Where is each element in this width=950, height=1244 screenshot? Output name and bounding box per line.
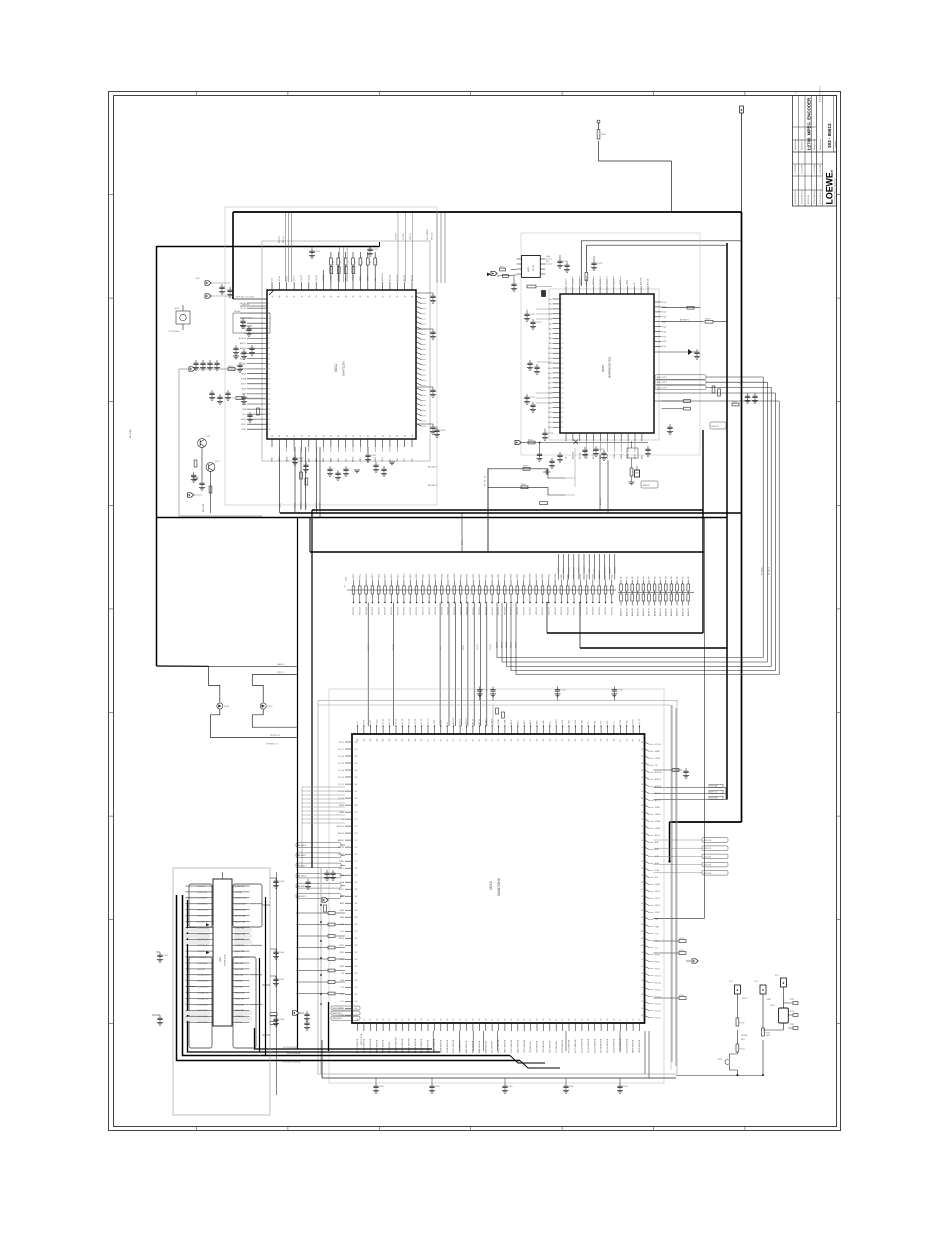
svg-text:SCL: SCL [546,261,550,263]
svg-text:40: 40 [272,296,274,298]
svg-text:67: 67 [594,1019,596,1021]
svg-text:R641: R641 [549,573,551,579]
svg-text:C703: C703 [617,690,623,692]
svg-text:ASCLK: ASCLK [389,274,392,281]
svg-text:AB A8 R: AB A8 R [665,608,668,616]
svg-text:AIN1 RA: AIN1 RA [235,956,243,959]
svg-text:R614: R614 [378,573,380,579]
svg-text:RTS1: RTS1 [370,720,372,725]
svg-text:VD D7 R: VD D7 R [523,607,525,615]
svg-text:VCLK ACLK 656 RA: VCLK ACLK 656 RA [283,1061,301,1064]
svg-text:73: 73 [633,1019,635,1021]
svg-text:107: 107 [402,739,404,742]
svg-text:VD_D2 MEM RA: VD_D2 MEM RA [613,1038,616,1053]
svg-text:20: 20 [269,399,271,401]
svg-text:CE MEM RA: CE MEM RA [388,1042,391,1053]
svg-text:4 03.02.99 Muel: 4 03.02.99 Muel [820,190,822,204]
svg-text:AB DAT 3: AB DAT 3 [298,875,306,878]
svg-text:ASCLK: ASCLK [578,452,581,459]
svg-text:VD_D1 MEM RA: VD_D1 MEM RA [619,1038,622,1053]
svg-text:115: 115 [453,739,455,742]
svg-text:AIN3: AIN3 [529,721,532,725]
svg-text:VDD1: VDD1 [241,424,246,426]
svg-text:VD D0 R: VD D0 R [416,607,418,615]
svg-text:R618: R618 [404,573,406,579]
svg-text:35: 35 [389,1019,391,1021]
svg-text:29: 29 [331,435,333,437]
svg-text:C620: C620 [371,455,377,457]
svg-text:CON RTS1: CON RTS1 [197,898,208,900]
svg-text:R: R [369,262,371,264]
svg-text:C676: C676 [597,263,603,265]
svg-text:40: 40 [421,1019,423,1021]
svg-text:11: 11 [269,353,271,355]
svg-text:RTS0: RTS0 [279,276,281,281]
svg-text:VD_D2: VD_D2 [574,567,576,573]
svg-text:94: 94 [641,980,643,982]
svg-text:AD_D1: AD_D1 [411,275,414,281]
svg-text:R629: R629 [473,573,475,579]
svg-text:4: 4 [269,318,270,320]
svg-text:64: 64 [575,1019,577,1021]
svg-text:190: 190 [355,952,358,954]
svg-text:114: 114 [447,739,449,742]
svg-text:VD_D2: VD_D2 [240,308,246,310]
svg-text:173: 173 [355,833,358,835]
svg-text:35: 35 [309,296,311,298]
svg-text:LLC: LLC [272,277,274,281]
svg-text:AIN1: AIN1 [242,388,246,391]
svg-text:134: 134 [575,739,577,742]
svg-text:191: 191 [355,959,358,961]
svg-text:63: 63 [641,763,643,765]
svg-text:VREF: VREF [627,279,629,285]
svg-text:8: 8 [344,586,346,588]
svg-text:AMCLK: AMCLK [396,274,399,281]
svg-text:VD D8 R: VD D8 R [593,607,595,615]
svg-text:112: 112 [434,739,436,742]
svg-text:54: 54 [511,1019,513,1021]
svg-text:182: 182 [355,896,358,898]
svg-text:34: 34 [316,296,318,298]
svg-text:VD D9 R: VD D9 R [536,607,538,615]
svg-text:C405: C405 [279,979,285,981]
svg-text:AB DAT 2: AB DAT 2 [298,864,306,867]
svg-text:SDA: SDA [546,255,550,258]
svg-text:VD_D7: VD_D7 [383,719,385,725]
svg-text:VD_D5: VD_D5 [338,763,344,765]
svg-text:75: 75 [641,847,643,849]
svg-text:ALRCLK MEM RA: ALRCLK MEM RA [395,1037,398,1053]
svg-text:A12: A12 [548,357,551,360]
svg-text:DIG G 2: DIG G 2 [283,236,285,243]
svg-text:DELAY: DELAY [234,310,241,313]
svg-text:61: 61 [641,749,643,751]
svg-text:VD D5 R: VD D5 R [574,607,576,615]
svg-text:AUD OUT 2: AUD OUT 2 [657,381,667,384]
svg-text:AB A0 R: AB A0 R [620,608,623,616]
svg-text:AB A6 R: AB A6 R [653,608,656,616]
svg-text:164: 164 [355,770,358,772]
svg-text:130: 130 [549,739,551,742]
svg-text:AIN4: AIN4 [340,916,344,919]
svg-text:14: 14 [269,368,271,370]
svg-text:AMCLK RA: AMCLK RA [235,909,246,912]
svg-text:121: 121 [492,739,494,742]
svg-text:LLC 27MHZ: LLC 27MHZ [427,228,429,240]
svg-text:VD_D7 MEM RA: VD_D7 MEM RA [581,1038,584,1053]
svg-text:113: 113 [440,739,442,742]
svg-text:AGND: AGND [315,502,318,508]
svg-text:47: 47 [466,1019,468,1021]
svg-text:HREF: HREF [434,719,436,725]
svg-text:137: 137 [594,739,596,742]
svg-text:VD_D7: VD_D7 [338,749,344,751]
svg-text:103: 103 [376,739,378,742]
svg-text:SCL: SCL [341,931,345,933]
svg-text:196: 196 [355,994,358,996]
svg-text:VDD2: VDD2 [655,905,660,907]
svg-text:55: 55 [517,1019,519,1021]
svg-text:RTCO: RTCO [376,719,378,725]
svg-text:116: 116 [460,739,462,742]
svg-text:R633: R633 [498,573,500,579]
svg-text:M29F800AB-70N1: M29F800AB-70N1 [608,356,612,378]
svg-text:VD D1 R: VD D1 R [423,607,425,615]
svg-text:D619: D619 [268,706,274,708]
svg-text:A17: A17 [548,382,551,385]
svg-text:33: 33 [360,435,362,437]
svg-text:AIN1: AIN1 [655,841,659,844]
svg-text:14: 14 [562,363,564,365]
svg-text:VSS1: VSS1 [655,898,660,900]
svg-text:C406: C406 [279,1019,285,1021]
svg-text:C611: C611 [315,251,321,253]
svg-text:VD_D5: VD_D5 [558,567,560,573]
svg-text:VD D1 R: VD D1 R [396,232,398,240]
svg-text:161: 161 [355,749,358,751]
svg-text:A1: A1 [549,303,551,306]
svg-text:AB A0 R: AB A0 R [676,608,679,616]
svg-text:SDA: SDA [242,408,246,411]
svg-text:R616: R616 [391,573,393,579]
svg-text:139: 139 [607,739,609,742]
svg-text:AIN1: AIN1 [307,458,310,462]
svg-text:VD_D6: VD_D6 [308,275,310,281]
svg-text:DQ2: DQ2 [663,312,667,314]
svg-text:VD_D0: VD_D0 [655,744,661,746]
svg-text:58: 58 [537,1019,539,1021]
svg-text:AUD CK2: AUD CK2 [704,855,712,858]
svg-text:86: 86 [641,924,643,926]
svg-text:VD_D6 MEM RA: VD_D6 MEM RA [587,1038,590,1053]
svg-text:AUD OUT 7: AUD OUT 7 [657,386,667,389]
svg-text:R: R [377,262,379,264]
svg-text:VD_D3: VD_D3 [338,777,344,779]
svg-text:VD D2 R: VD D2 R [492,607,494,615]
svg-text:VD D2 R: VD D2 R [555,607,557,615]
svg-text:IIC SCL 3: IIC SCL 3 [769,567,771,575]
svg-text:CON VD_D1: CON VD_D1 [197,945,209,947]
svg-text:R688: R688 [732,401,738,403]
svg-text:RESQ: RESQ [556,719,558,725]
svg-text:RESQ: RESQ [353,456,355,462]
svg-text:AV1: AV1 [196,277,201,280]
svg-text:I4070: I4070 [601,365,605,372]
svg-text:98: 98 [641,1008,643,1010]
svg-text:52: 52 [498,1019,500,1021]
svg-text:10: 10 [269,348,271,350]
svg-text:82: 82 [641,896,643,898]
svg-text:A15: A15 [548,372,551,375]
svg-text:CON VREF: CON VREF [197,963,208,965]
svg-text:25: 25 [269,424,271,426]
svg-text:106: 106 [396,739,398,742]
svg-text:XTALI: XTALI [655,806,660,809]
svg-text:Freigabe: Freigabe [835,141,837,148]
svg-text:SC VCLK 656 RA: SC VCLK 656 RA [283,1046,299,1049]
svg-text:A10: A10 [548,347,551,350]
svg-text:I4075: I4075 [528,266,530,272]
svg-text:SDA MEM RA: SDA MEM RA [484,1040,487,1053]
svg-text:TMS: TMS [594,720,596,725]
svg-text:C612: C612 [373,249,379,251]
svg-text:VREF MEM RA: VREF MEM RA [382,1039,385,1053]
svg-text:TDI: TDI [341,973,344,975]
svg-text:AGND: AGND [294,502,297,508]
svg-text:R0: R0 [621,576,623,579]
svg-text:VD_D5: VD_D5 [655,989,661,991]
svg-text:84: 84 [641,910,643,912]
svg-text:VDD1: VDD1 [562,720,564,725]
svg-text:R: R [347,262,349,264]
svg-text:123: 123 [505,739,507,742]
svg-text:R630: R630 [479,573,481,579]
svg-text:393 - 89612: 393 - 89612 [827,123,832,148]
svg-text:91: 91 [641,959,643,961]
svg-text:104: 104 [383,739,385,742]
svg-text:R619: R619 [410,573,412,579]
svg-text:CON VD_D6: CON VD_D6 [197,916,209,918]
svg-text:DQ7: DQ7 [663,336,667,338]
svg-text:DQ9: DQ9 [663,346,667,348]
svg-text:R675: R675 [500,266,506,268]
svg-text:ASCLK: ASCLK [608,566,611,573]
svg-text:R610: R610 [601,134,607,136]
svg-text:100n: 100n [508,1086,514,1088]
svg-text:ASCLK: ASCLK [647,278,650,285]
svg-text:131: 131 [556,739,558,742]
svg-text:TDI MEM RA: TDI MEM RA [529,1041,532,1053]
svg-text:90: 90 [641,952,643,954]
svg-text:Name Datum: Name Datum [801,138,804,150]
svg-text:SCL: SCL [549,721,551,725]
svg-text:DQ8: DQ8 [663,341,667,343]
svg-text:VD D8 R: VD D8 R [530,607,532,615]
svg-text:VREF RA: VREF RA [235,885,244,888]
svg-text:VDD1 MEM RA: VDD1 MEM RA [504,1039,507,1053]
svg-text:VD_D3: VD_D3 [408,719,410,725]
svg-text:VD_D6: VD_D6 [655,982,661,984]
svg-text:AV CVBS: AV CVBS [129,429,132,438]
svg-text:187: 187 [355,931,358,933]
svg-text:TDI RA: TDI RA [235,1021,242,1024]
svg-text:ASCLK RA: ASCLK RA [235,903,246,906]
svg-text:XTALO RA: XTALO RA [235,932,245,935]
svg-text:35: 35 [375,435,377,437]
svg-text:XTALI: XTALI [271,456,274,462]
svg-text:C618: C618 [298,458,304,460]
svg-text:AD_D1: AD_D1 [478,719,481,725]
svg-text:a 21.10.98: a 21.10.98 [814,165,816,174]
svg-text:RTCO: RTCO [655,968,661,970]
svg-text:36: 36 [396,1019,398,1021]
svg-text:VD_D4: VD_D4 [563,567,565,573]
svg-text:37: 37 [294,296,296,298]
svg-text:UB SW 3.3: UB SW 3.3 [270,735,281,737]
svg-text:195: 195 [355,987,358,989]
svg-text:VD D3 R: VD D3 R [372,607,374,615]
svg-text:VREF: VREF [241,328,247,330]
svg-text:186: 186 [355,924,358,926]
svg-text:VD D0 R: VD D0 R [403,232,405,240]
svg-text:RTS0: RTS0 [463,645,465,650]
svg-text:21: 21 [562,397,564,399]
svg-text:AU DAC L: AU DAC L [428,466,438,469]
svg-text:R625: R625 [448,573,450,579]
svg-text:100n: 100n [379,1086,385,1088]
svg-text:MEM DAT 2: MEM DAT 2 [333,1017,343,1020]
svg-text:VSS2: VSS2 [655,912,660,914]
svg-text:TDO: TDO [340,994,344,996]
svg-text:9: 9 [269,343,270,345]
svg-text:R638: R638 [530,573,532,579]
svg-text:160: 160 [355,742,358,744]
svg-text:VDD2: VDD2 [375,457,377,462]
svg-text:AOUT MEM RA: AOUT MEM RA [452,1039,455,1053]
svg-text:21: 21 [412,296,414,298]
svg-text:ADC REF: ADC REF [202,503,205,512]
svg-text:VD D3 R: VD D3 R [435,607,437,615]
svg-text:AB DAT 1: AB DAT 1 [298,854,306,857]
svg-text:A PWR 5V: A PWR 5V [680,319,690,322]
svg-text:BUF SEL CYC MUX: BUF SEL CYC MUX [236,297,255,299]
svg-text:17: 17 [562,378,564,380]
svg-text:C675: C675 [563,261,569,263]
svg-text:VD_D5: VD_D5 [490,644,492,650]
svg-text:SAA7113H: SAA7113H [342,361,346,376]
svg-text:ALRCLK: ALRCLK [239,337,247,340]
svg-text:VSS1 RA: VSS1 RA [235,1003,244,1006]
svg-text:26: 26 [375,296,377,298]
svg-text:SCH MPEG ENC 21.10.98 4/99: SCH MPEG ENC 21.10.98 4/99 [835,179,837,204]
svg-text:TMS MEM RA: TMS MEM RA [536,1040,539,1053]
svg-text:46: 46 [460,1019,462,1021]
svg-text:VSS2: VSS2 [382,457,384,462]
svg-text:117: 117 [466,739,468,742]
svg-text:VD_D7: VD_D7 [566,279,568,285]
svg-text:71: 71 [620,1019,622,1021]
svg-text:110: 110 [421,739,423,742]
svg-text:R631: R631 [486,573,488,579]
svg-text:VD D1 R: VD D1 R [612,607,614,615]
svg-text:C701: C701 [483,690,489,692]
svg-text:DQ5: DQ5 [663,326,667,328]
svg-text:STBY: STBY [767,999,772,1001]
svg-text:73: 73 [641,833,643,835]
svg-text:136: 136 [588,739,590,742]
svg-text:Q613: Q613 [174,308,180,310]
svg-text:29: 29 [353,296,355,298]
svg-text:C403: C403 [279,881,285,883]
svg-text:AUD OUT 7: AUD OUT 7 [657,376,667,379]
svg-text:VSSA: VSSA [655,827,661,830]
svg-text:VD D7 R: VD D7 R [397,607,399,615]
svg-text:R642: R642 [555,573,557,579]
svg-text:178: 178 [355,868,358,870]
svg-text:VD_D1: VD_D1 [579,567,581,573]
svg-text:VD_D5: VD_D5 [396,719,398,725]
svg-text:66: 66 [641,784,643,786]
svg-text:RTCO MEM RA: RTCO MEM RA [574,1039,577,1053]
svg-text:HREF: HREF [241,323,247,325]
svg-text:13: 13 [562,358,564,360]
svg-text:R634: R634 [504,573,506,579]
svg-text:VD D9 R: VD D9 R [473,607,475,615]
svg-text:ALRCLK RA: ALRCLK RA [235,897,247,900]
svg-text:CON HREF: CON HREF [197,957,208,959]
svg-text:VD_D6: VD_D6 [368,644,370,650]
svg-text:23: 23 [562,407,564,409]
svg-text:C678: C678 [548,433,554,435]
svg-text:R627: R627 [460,573,462,579]
svg-text:AB A4 R: AB A4 R [642,608,645,616]
svg-text:TCK: TCK [404,457,406,462]
svg-text:RTS1: RTS1 [626,720,628,725]
svg-text:10: 10 [562,343,564,345]
svg-text:Q751: Q751 [770,1005,775,1007]
svg-text:VD CLK: VD CLK [432,232,434,240]
svg-text:VD D7 R: VD D7 R [460,607,462,615]
svg-text:CON ALRCLK: CON ALRCLK [197,974,210,977]
svg-text:SCL: SCL [655,877,659,879]
svg-text:AD_D1 RA: AD_D1 RA [235,920,245,923]
svg-text:77: 77 [641,861,643,863]
svg-text:16: 16 [269,379,271,381]
svg-text:Name Datum: Name Datum [813,138,816,150]
svg-text:AB A9 R: AB A9 R [670,608,673,616]
svg-text:3: 3 [562,309,563,311]
svg-text:VDD1: VDD1 [360,457,362,462]
svg-text:60: 60 [549,1019,551,1021]
svg-text:VREF R: VREF R [410,233,412,240]
svg-text:126: 126 [524,739,526,742]
svg-text:R: R [333,262,335,264]
svg-text:CON AMCLK: CON AMCLK [197,986,209,989]
svg-text:VD_D1: VD_D1 [421,719,423,725]
svg-text:168: 168 [355,798,358,800]
svg-text:36: 36 [382,435,384,437]
svg-text:TDI: TDI [588,721,590,724]
svg-text:LLC: LLC [341,1001,345,1003]
svg-text:RESQ RA: RESQ RA [235,992,245,995]
svg-text:VD D0 R: VD D0 R [542,607,544,615]
svg-text:VD_D3 MEM RA: VD_D3 MEM RA [606,1038,609,1053]
svg-text:VREF: VREF [655,758,661,760]
svg-text:CE RA: CE RA [235,891,242,894]
svg-text:71: 71 [641,819,643,821]
svg-text:179: 179 [355,875,358,877]
